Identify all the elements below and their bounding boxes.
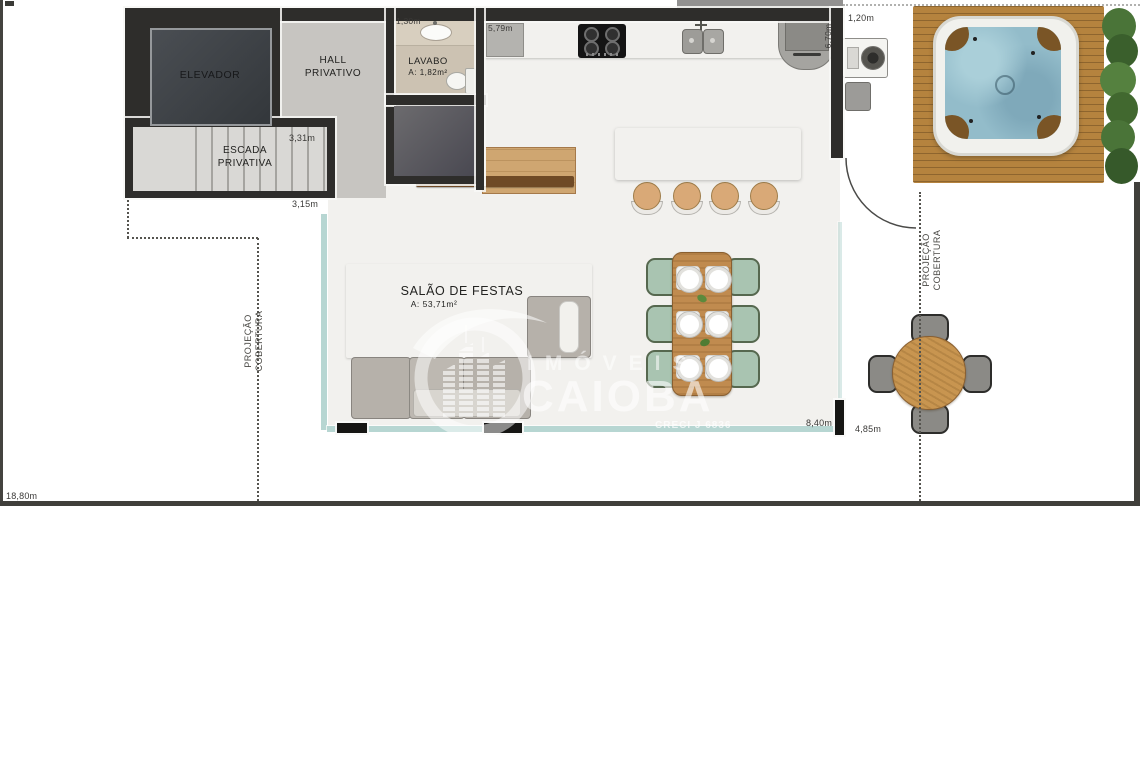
bbq-handle [793, 53, 821, 56]
corner-mark [5, 1, 14, 6]
wall-stub-1 [337, 423, 367, 433]
stool-1 [633, 182, 661, 210]
ac-fan-icon [861, 46, 885, 70]
stairs-label-line2: PRIVATIVA [175, 158, 315, 171]
projection-line-top-right [843, 4, 1140, 6]
planter-hedge [1098, 8, 1140, 186]
sink-faucet-bar [695, 24, 707, 26]
lavabo-sink [420, 24, 452, 41]
hall-label-line1: HALL [283, 55, 383, 68]
equipment-box [845, 82, 871, 111]
dim-stairs-lower: 3,15m [292, 199, 318, 209]
plate-3 [677, 312, 702, 337]
spa-seat-br [1037, 115, 1061, 139]
bistro-chair-east [962, 355, 992, 393]
wall-lavabo-bottom [386, 95, 486, 105]
spa-drain [995, 75, 1015, 95]
dim-stairs-upper: 3,31m [289, 133, 315, 143]
projection-label-left: PROJEÇÃO COBERTURA [243, 286, 255, 396]
dim-kitchen-depth: 6,70m [823, 16, 833, 56]
elevator-label: ELEVADOR [155, 69, 265, 82]
door-swing-arc [838, 150, 928, 235]
spa-jet-3 [969, 119, 973, 123]
stairs-label: ESCADA PRIVATIVA [175, 145, 315, 170]
stool-3 [711, 182, 739, 210]
spa-seat-tl [945, 27, 969, 51]
stool-4 [750, 182, 778, 210]
plate-4 [706, 312, 731, 337]
projection-label-right: PROJEÇÃO COBERTURA [921, 205, 933, 315]
island-counter [615, 128, 801, 180]
wall-kitchen-left [476, 8, 484, 190]
spa-jet-1 [973, 37, 977, 41]
stairs-label-line1: ESCADA [175, 145, 315, 158]
spa-jet-2 [1031, 51, 1035, 55]
lavabo-label: LAVABO [388, 56, 468, 68]
plan-edge-bottom [0, 501, 1140, 506]
projection-line-left-c [257, 238, 259, 505]
plate-2 [706, 267, 731, 292]
plate-1 [677, 267, 702, 292]
round-table [892, 336, 966, 410]
dim-terrace-width: 4,85m [855, 424, 881, 434]
burner-1 [584, 27, 599, 42]
spa-seat-bl [945, 115, 969, 139]
projection-line-left-b [127, 237, 258, 239]
floor-plan-render: PROJEÇÃO COBERTURA PROJEÇÃO COBERTURA SA… [0, 0, 1140, 760]
watermark-brand-main: CAIOBA [522, 372, 714, 422]
spa-seat-tr [1037, 27, 1061, 51]
watermark-creci: CRECI J 6836 [655, 420, 731, 431]
lavabo-area-label: A: 1,82m² [388, 68, 468, 78]
glass-railing-left [321, 214, 327, 430]
ac-unit [842, 38, 888, 78]
dim-terrace-gap: 1,20m [848, 13, 874, 23]
hall-label-line2: PRIVATIVO [283, 68, 383, 81]
hot-tub-water [945, 27, 1061, 139]
plant-6 [1105, 148, 1138, 184]
projection-line-left-a [127, 200, 129, 238]
burner-2 [605, 27, 620, 42]
dim-total-width: 18,80m [6, 491, 37, 501]
hall-label: HALL PRIVATIVO [283, 55, 383, 80]
plan-edge-right [1134, 182, 1140, 505]
wall-stub-right [835, 400, 844, 435]
cooktop-knobs [586, 53, 618, 56]
plan-edge-left [0, 0, 3, 505]
ac-panel [847, 47, 859, 69]
dim-salao-width: 8,40m [806, 418, 832, 428]
glass-railing-right [838, 222, 842, 400]
storage-floor [394, 106, 476, 176]
spa-jet-4 [1037, 115, 1041, 119]
sink-drain-right [710, 38, 715, 43]
dim-lavabo-width: 1,30m [396, 16, 421, 26]
stool-2 [673, 182, 701, 210]
hot-tub [933, 16, 1079, 156]
sink-drain-left [689, 38, 694, 43]
lavabo-faucet [433, 21, 437, 25]
cooktop [578, 24, 626, 58]
dim-kitchen-width: 5,79m [488, 23, 513, 33]
